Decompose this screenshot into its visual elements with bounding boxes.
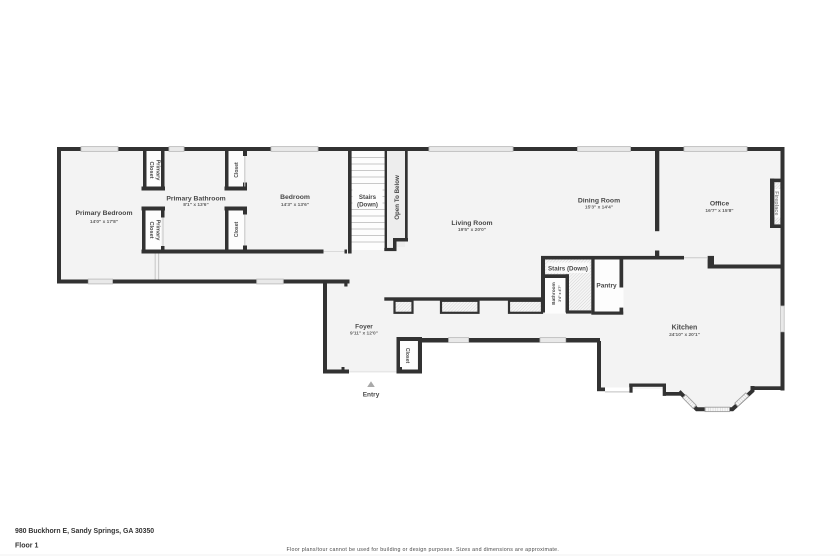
svg-text:Open To Below: Open To Below bbox=[394, 175, 401, 220]
svg-text:Floor 1: Floor 1 bbox=[15, 543, 38, 550]
svg-text:Closet: Closet bbox=[234, 162, 240, 178]
svg-text:3'4" x 4'7": 3'4" x 4'7" bbox=[558, 285, 562, 302]
svg-text:9'11" x 12'0": 9'11" x 12'0" bbox=[350, 331, 378, 337]
svg-text:14'3" x 13'6": 14'3" x 13'6" bbox=[281, 202, 309, 208]
svg-text:Entry: Entry bbox=[363, 391, 380, 398]
svg-text:Fireplace: Fireplace bbox=[773, 191, 779, 215]
svg-text:Primary Bathroom: Primary Bathroom bbox=[166, 196, 225, 203]
svg-text:8'1" x 13'6": 8'1" x 13'6" bbox=[183, 202, 209, 208]
svg-text:Primary: Primary bbox=[155, 160, 161, 182]
svg-text:Living Room: Living Room bbox=[451, 220, 492, 227]
svg-text:Closet: Closet bbox=[148, 221, 154, 238]
svg-text:15'3" x 14'4": 15'3" x 14'4" bbox=[585, 205, 613, 211]
svg-text:Bathroom: Bathroom bbox=[551, 282, 557, 305]
svg-text:980 Buckhorn E, Sandy Springs,: 980 Buckhorn E, Sandy Springs, GA 30350 bbox=[15, 528, 154, 535]
svg-text:Floor plans/tour cannot be use: Floor plans/tour cannot be used for buil… bbox=[287, 547, 560, 553]
svg-text:Dining Room: Dining Room bbox=[578, 198, 620, 205]
svg-text:Closet: Closet bbox=[148, 161, 154, 178]
svg-text:16'7" x 15'8": 16'7" x 15'8" bbox=[705, 208, 733, 214]
svg-text:24'10" x 20'1": 24'10" x 20'1" bbox=[669, 332, 700, 338]
svg-text:Stairs (Down): Stairs (Down) bbox=[548, 266, 588, 273]
svg-text:Closet: Closet bbox=[234, 222, 240, 238]
svg-text:19'5" x 20'0": 19'5" x 20'0" bbox=[458, 227, 486, 233]
svg-text:(Down): (Down) bbox=[357, 202, 378, 209]
svg-text:Stairs: Stairs bbox=[359, 194, 377, 201]
svg-text:Foyer: Foyer bbox=[355, 324, 373, 331]
svg-text:Pantry: Pantry bbox=[596, 283, 617, 290]
svg-text:Primary Bedroom: Primary Bedroom bbox=[75, 210, 132, 217]
svg-text:14'0" x 17'8": 14'0" x 17'8" bbox=[90, 219, 118, 225]
svg-text:Office: Office bbox=[710, 201, 729, 208]
svg-text:Bedroom: Bedroom bbox=[280, 194, 310, 201]
svg-text:Closet: Closet bbox=[404, 348, 410, 364]
svg-text:Primary: Primary bbox=[155, 220, 161, 242]
svg-text:Kitchen: Kitchen bbox=[672, 325, 698, 332]
